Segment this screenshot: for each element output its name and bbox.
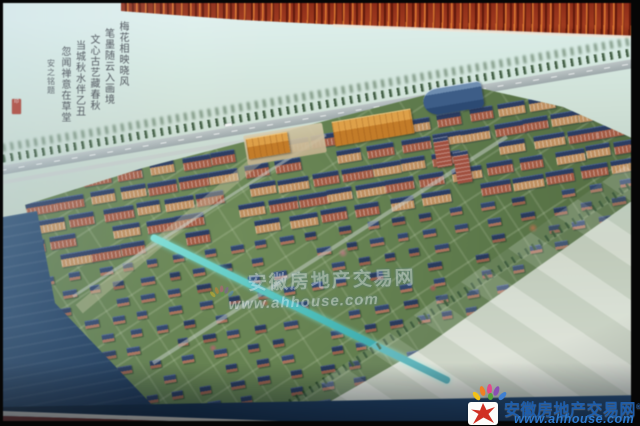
logo-site-url: www.ahhouse.com	[514, 412, 634, 426]
site-logo: 安徽房地产交易网® www.ahhouse.com	[462, 382, 638, 426]
registered-mark: ®	[636, 404, 640, 411]
petal-icon	[488, 393, 493, 400]
watermark-logo-mark	[204, 285, 241, 314]
photo-vignette	[3, 3, 631, 421]
logo-figure-icon	[468, 402, 498, 425]
billboard-photograph: 梅花相映晓风 笔墨随云入画境 文心古艺藏春秋 当城秋水伴乙丑 忽闻禅意在草堂 安…	[0, 0, 640, 426]
billboard-photo: 梅花相映晓风 笔墨随云入画境 文心古艺藏春秋 当城秋水伴乙丑 忽闻禅意在草堂 安…	[3, 3, 631, 421]
center-watermark: 安徽房地产交易网 www.ahhouse.com	[195, 262, 446, 315]
petal-icon	[227, 290, 234, 298]
petal-icon	[479, 386, 487, 397]
petal-icon	[221, 292, 225, 297]
